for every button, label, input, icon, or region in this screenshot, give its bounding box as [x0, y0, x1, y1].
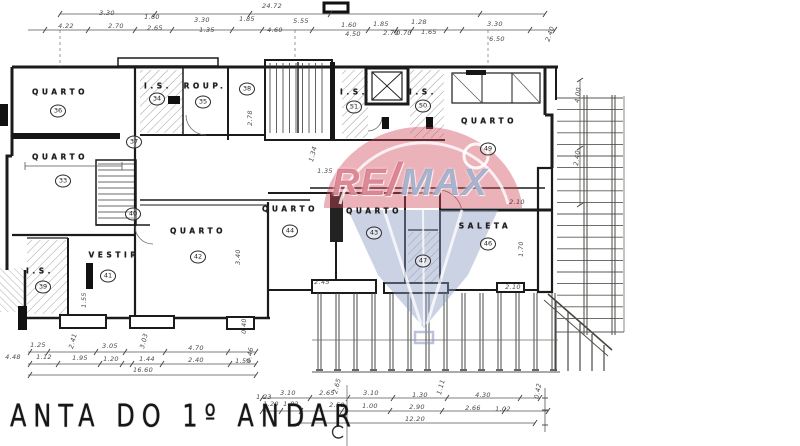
main-staircase [270, 62, 322, 133]
plan-title: ANTA DO 1º ANDAR [10, 398, 358, 434]
floor-plan-drawing [0, 0, 800, 446]
side-terrace-slats [556, 95, 624, 335]
plan-sheet: RE/MAX QUARTO36I.S.34ROUP.3538I.S.51I.S.… [0, 0, 800, 446]
duplex-staircase [98, 164, 134, 218]
shaft-marker [324, 3, 348, 12]
